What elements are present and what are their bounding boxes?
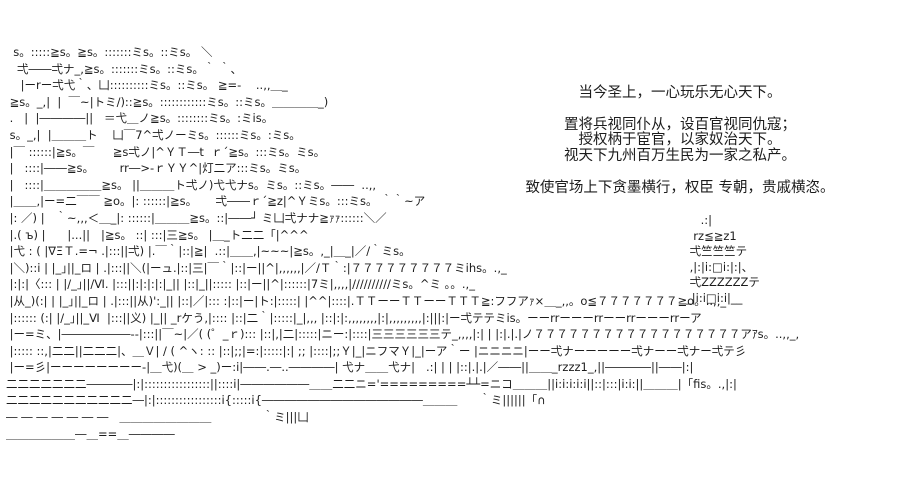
narration-text: 当今圣上，一心玩乐无心天下。 置将兵视同仆从，设百官视同仇寇； 授权柄于宦官，以…: [468, 86, 892, 197]
pagoda-ascii-art: .:| rz≦≧z1 弌竺竺竺テ ,|:|i:□i:|:|、 弌ZZZZZZテ …: [686, 213, 760, 306]
ascii-art-scene: s。:::::≧s。≧s。:::::::ミs。::ミs。 ＼ 弌――弌ナ_,≧s…: [0, 0, 922, 496]
